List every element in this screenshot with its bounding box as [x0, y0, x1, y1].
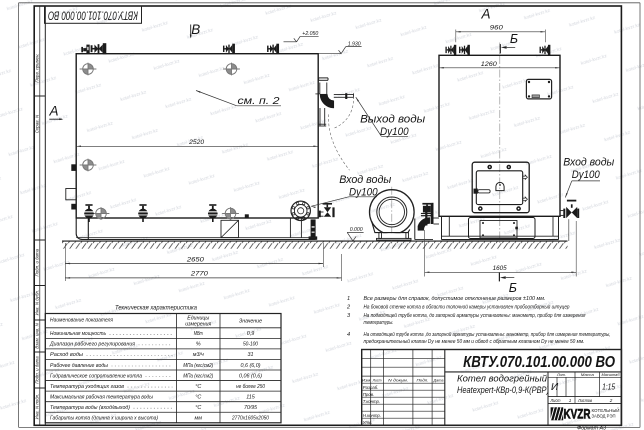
svg-text:70/95: 70/95	[244, 405, 258, 411]
svg-text:Масштаб: Масштаб	[602, 373, 621, 377]
svg-text:см. п. 2: см. п. 2	[238, 95, 280, 107]
svg-text:115: 115	[246, 394, 256, 400]
svg-text:Единицы: Единицы	[187, 315, 209, 321]
svg-text:Взам. инв. N: Взам. инв. N	[35, 322, 40, 348]
svg-text:КВТУ.070.101.00.000 ВО: КВТУ.070.101.00.000 ВО	[463, 354, 615, 371]
svg-text:0,06 (0,6): 0,06 (0,6)	[239, 373, 262, 379]
svg-text:1: 1	[347, 296, 350, 302]
svg-text:960: 960	[490, 24, 503, 31]
svg-text:На подводящей трубе котла, д: На подводящей трубе котла, до запорной а…	[364, 312, 586, 319]
svg-text:Вход воды: Вход воды	[339, 174, 391, 186]
svg-text:м3/ч: м3/ч	[193, 352, 204, 358]
svg-text:Номинальная мощность: Номинальная мощность	[50, 331, 106, 337]
svg-text:мм: мм	[195, 416, 203, 422]
svg-text:1:15: 1:15	[602, 382, 615, 392]
svg-text:Техническая характеристика: Техническая характеристика	[115, 305, 198, 311]
svg-text:Б: Б	[510, 32, 518, 46]
svg-text:%: %	[196, 342, 201, 348]
svg-text:Подп. и дата: Подп. и дата	[35, 248, 40, 276]
svg-text:Подп. и дата: Подп. и дата	[35, 356, 40, 384]
svg-text:Формат А3: Формат А3	[577, 426, 606, 430]
svg-text:Выход воды: Выход воды	[360, 114, 425, 126]
svg-text:Масса: Масса	[581, 373, 594, 377]
svg-text:Температура уходящих газов: Температура уходящих газов	[50, 384, 124, 390]
svg-text:измерения: измерения	[185, 322, 211, 328]
svg-text:Подп.: Подп.	[417, 379, 429, 383]
svg-text:2770х1605х2050: 2770х1605х2050	[231, 416, 269, 422]
svg-text:Б: Б	[509, 281, 517, 295]
svg-text:Температура воды (вход/выход): Температура воды (вход/выход)	[50, 405, 130, 411]
svg-text:Инв. N дубл.: Инв. N дубл.	[35, 290, 40, 315]
svg-text:Н.контр.: Н.контр.	[363, 413, 381, 418]
svg-text:Рабочее давление воды: Рабочее давление воды	[50, 363, 108, 369]
svg-text:Наименование показателя: Наименование показателя	[50, 318, 113, 324]
svg-text:Dy100: Dy100	[572, 169, 601, 181]
svg-text:Значение: Значение	[239, 319, 262, 325]
svg-text:°С: °С	[195, 394, 201, 400]
svg-text:2650: 2650	[186, 256, 205, 263]
svg-text:И: И	[551, 382, 559, 393]
svg-text:Вход воды: Вход воды	[563, 156, 614, 168]
svg-text:Листов: Листов	[577, 398, 592, 403]
svg-text:Котел водогрейный: Котел водогрейный	[457, 374, 548, 385]
svg-text:31: 31	[248, 352, 254, 358]
svg-text:2520: 2520	[188, 139, 204, 146]
svg-text:Лит.: Лит.	[556, 373, 566, 377]
svg-text:КОТЕЛЬНЫЙ: КОТЕЛЬНЫЙ	[592, 408, 620, 413]
svg-text:Пров.: Пров.	[363, 392, 374, 397]
svg-text:не более 250: не более 250	[236, 384, 265, 390]
svg-text:0,9: 0,9	[247, 331, 255, 337]
svg-text:0,6 (6,0): 0,6 (6,0)	[241, 363, 261, 369]
svg-text:МПа (кгс/см2): МПа (кгс/см2)	[183, 363, 213, 369]
svg-text:Утв.: Утв.	[363, 420, 373, 425]
svg-text:Справ. N: Справ. N	[35, 114, 40, 133]
svg-text:N докум.: N докум.	[388, 379, 408, 383]
svg-text:Все размеры для справок, допус: Все размеры для справок, допустимое откл…	[364, 296, 546, 302]
svg-text:Расход воды: Расход воды	[50, 352, 83, 358]
svg-text:КВТУ.070.101.00.000 ВО: КВТУ.070.101.00.000 ВО	[48, 9, 138, 23]
svg-text:МПа (кгс/см2): МПа (кгс/см2)	[183, 373, 213, 379]
svg-text:предохранительный клапан Dу н: предохранительный клапан Dу не менее 50 …	[364, 338, 585, 345]
svg-text:Дата: Дата	[433, 379, 444, 383]
svg-text:На боковой стенке котла в обла: На боковой стенке котла в области топочн…	[364, 304, 570, 311]
svg-text:Инв. N подл.: Инв. N подл.	[35, 394, 40, 420]
svg-text:Габариты котла (длинна х ширин: Габариты котла (длинна х ширина х высота…	[50, 416, 158, 422]
svg-text:Разраб.: Разраб.	[363, 385, 379, 390]
svg-text:Heatexpert-КВр-0,9-К(РВР): Heatexpert-КВр-0,9-К(РВР)	[457, 385, 549, 395]
svg-text:1260: 1260	[481, 61, 497, 68]
svg-text:Максимальная рабочая температу: Максимальная рабочая температура воды	[50, 394, 153, 400]
svg-text:А: А	[48, 104, 58, 119]
svg-text:Лист: Лист	[372, 379, 382, 383]
svg-text:ЗАВОД РЭП: ЗАВОД РЭП	[592, 414, 616, 419]
svg-text:KVZR: KVZR	[564, 406, 591, 422]
svg-text:4: 4	[347, 332, 350, 338]
svg-text:Лист: Лист	[550, 398, 561, 403]
svg-text:1605: 1605	[493, 265, 507, 272]
svg-text:На отводящей трубе котла ,до з: На отводящей трубе котла ,до запорной ар…	[364, 331, 611, 338]
svg-text:МВт: МВт	[194, 331, 203, 337]
svg-text:Перв. примен.: Перв. примен.	[35, 53, 40, 82]
svg-text:температуры.: температуры.	[364, 320, 394, 326]
svg-text:2: 2	[609, 398, 613, 403]
svg-text:Гидравлическое сопротивление к: Гидравлическое сопротивление котла	[50, 373, 142, 379]
svg-text:В: В	[191, 22, 200, 37]
svg-text:А: А	[480, 6, 490, 21]
svg-text:50-100: 50-100	[243, 342, 258, 348]
svg-text:°С: °С	[195, 405, 201, 411]
svg-text:Диапазон рабочего регулировани: Диапазон рабочего регулирования	[49, 342, 135, 348]
svg-text:°С: °С	[195, 384, 201, 390]
svg-text:1: 1	[569, 398, 572, 403]
svg-text:2770: 2770	[190, 271, 209, 278]
svg-text:Т.контр.: Т.контр.	[363, 399, 380, 404]
svg-text:Изм: Изм	[362, 379, 370, 383]
